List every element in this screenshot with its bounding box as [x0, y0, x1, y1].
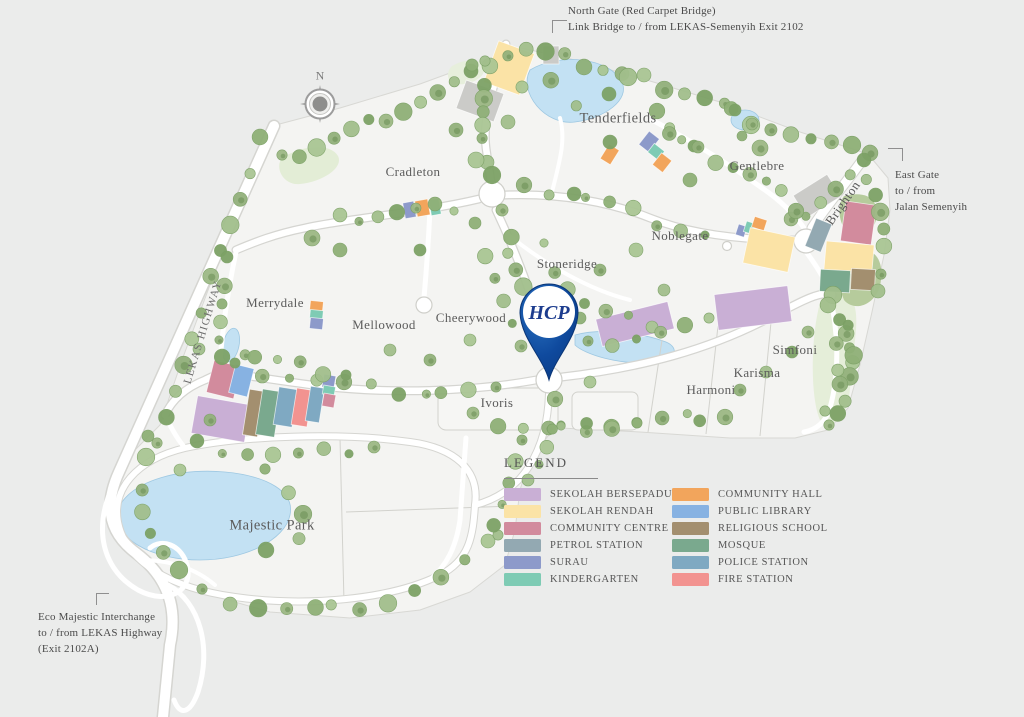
- legend-swatch: [504, 556, 541, 569]
- north-gate-bracket: [552, 20, 567, 33]
- legend-item: COMMUNITY CENTRE: [504, 522, 672, 535]
- legend-rule: [504, 478, 598, 479]
- north-gate-note: North Gate (Red Carpet Bridge) Link Brid…: [568, 4, 804, 36]
- east-gate-line1: East Gate: [895, 168, 967, 184]
- legend-column-left: SEKOLAH BERSEPADU SEKOLAH RENDAH COMMUNI…: [504, 488, 672, 590]
- legend-column-right: COMMUNITY HALL PUBLIC LIBRARY RELIGIOUS …: [672, 488, 840, 590]
- legend-item: POLICE STATION: [672, 556, 840, 569]
- hcp-pin-label: HCP: [527, 302, 570, 324]
- legend-item: KINDERGARTEN: [504, 573, 672, 586]
- area-label-tenderfields: Tenderfields: [579, 111, 656, 128]
- legend-swatch: [672, 556, 709, 569]
- hcp-pin-icon: HCP: [510, 272, 588, 384]
- interchange-note: Eco Majestic Interchange to / from LEKAS…: [38, 610, 162, 658]
- legend-item: FIRE STATION: [672, 573, 840, 586]
- area-label-simfoni: Simfoni: [773, 342, 818, 358]
- east-gate-line3: Jalan Semenyih: [895, 200, 967, 216]
- area-label-noblegate: Noblegate: [651, 228, 708, 244]
- legend: LEGEND SEKOLAH BERSEPADU SEKOLAH RENDAH …: [504, 455, 840, 590]
- interchange-line2: to / from LEKAS Highway: [38, 626, 162, 642]
- area-label-mellowood: Mellowood: [352, 317, 416, 333]
- area-label-harmoni: Harmoni: [686, 382, 735, 398]
- interchange-bracket: [96, 593, 109, 605]
- legend-swatch: [504, 522, 541, 535]
- masterplan-map: North Gate (Red Carpet Bridge) Link Brid…: [0, 0, 1024, 717]
- area-label-ivoris: Ivoris: [481, 395, 514, 411]
- interchange-line3: (Exit 2102A): [38, 642, 162, 658]
- legend-item: SEKOLAH RENDAH: [504, 505, 672, 518]
- area-label-karisma: Karisma: [734, 365, 781, 381]
- interchange-line1: Eco Majestic Interchange: [38, 610, 162, 626]
- east-gate-bracket: [888, 148, 903, 161]
- legend-swatch: [504, 539, 541, 552]
- hcp-location-pin[interactable]: HCP: [510, 272, 588, 384]
- legend-item: RELIGIOUS SCHOOL: [672, 522, 840, 535]
- legend-swatch: [504, 505, 541, 518]
- east-gate-line2: to / from: [895, 184, 967, 200]
- legend-swatch: [504, 488, 541, 501]
- compass-north-label: N: [316, 69, 325, 84]
- area-label-cradleton: Cradleton: [386, 164, 441, 180]
- legend-item: SURAU: [504, 556, 672, 569]
- legend-swatch: [672, 573, 709, 586]
- east-gate-note: East Gate to / from Jalan Semenyih: [895, 168, 967, 216]
- legend-title: LEGEND: [504, 455, 840, 471]
- area-label-stoneridge: Stoneridge: [537, 256, 597, 272]
- legend-item: COMMUNITY HALL: [672, 488, 840, 501]
- area-label-cheerywood: Cheerywood: [436, 310, 506, 326]
- legend-swatch: [672, 539, 709, 552]
- legend-swatch: [672, 522, 709, 535]
- legend-item: PUBLIC LIBRARY: [672, 505, 840, 518]
- area-label-majestic-park: Majestic Park: [229, 518, 314, 535]
- legend-swatch: [672, 488, 709, 501]
- area-label-merrydale: Merrydale: [246, 295, 304, 311]
- legend-item: SEKOLAH BERSEPADU: [504, 488, 672, 501]
- area-label-gentlebre: Gentlebre: [730, 158, 785, 174]
- north-gate-line1: North Gate (Red Carpet Bridge): [568, 4, 804, 20]
- legend-item: PETROL STATION: [504, 539, 672, 552]
- compass-rose-icon: [296, 84, 344, 124]
- north-gate-line2: Link Bridge to / from LEKAS-Semenyih Exi…: [568, 20, 804, 36]
- legend-item: MOSQUE: [672, 539, 840, 552]
- legend-swatch: [672, 505, 709, 518]
- legend-swatch: [504, 573, 541, 586]
